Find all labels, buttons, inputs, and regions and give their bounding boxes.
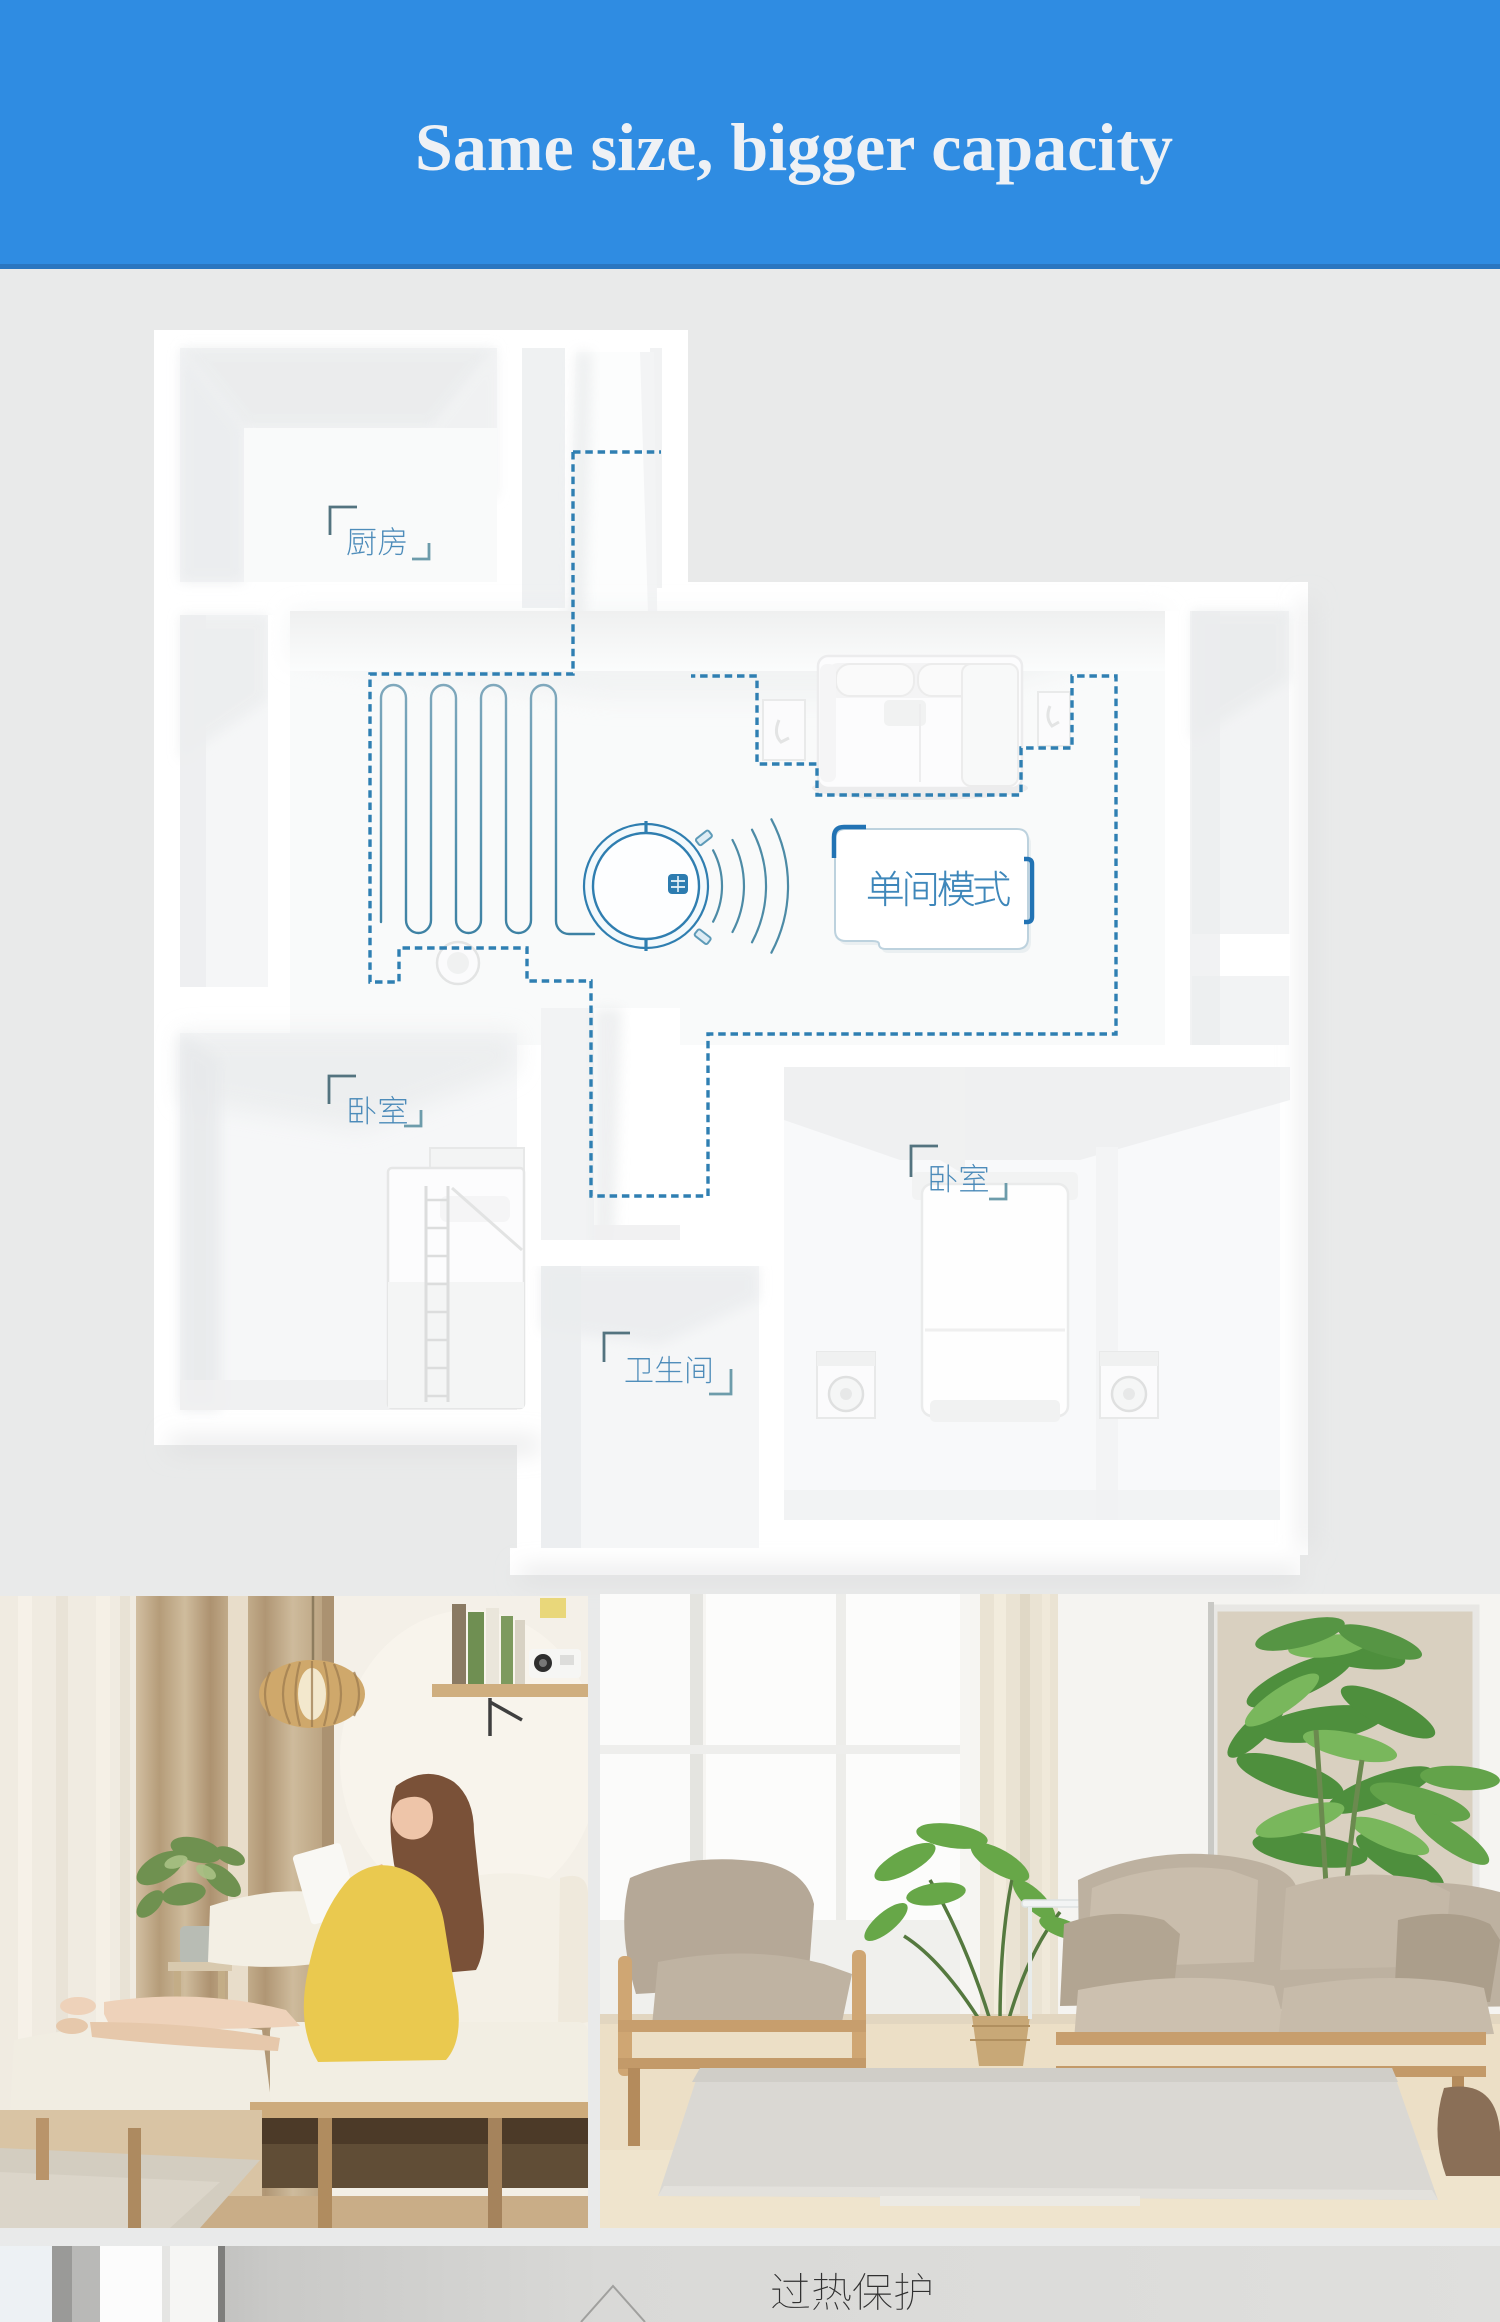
svg-text:Same size, bigger capacity: Same size, bigger capacity — [415, 109, 1173, 185]
